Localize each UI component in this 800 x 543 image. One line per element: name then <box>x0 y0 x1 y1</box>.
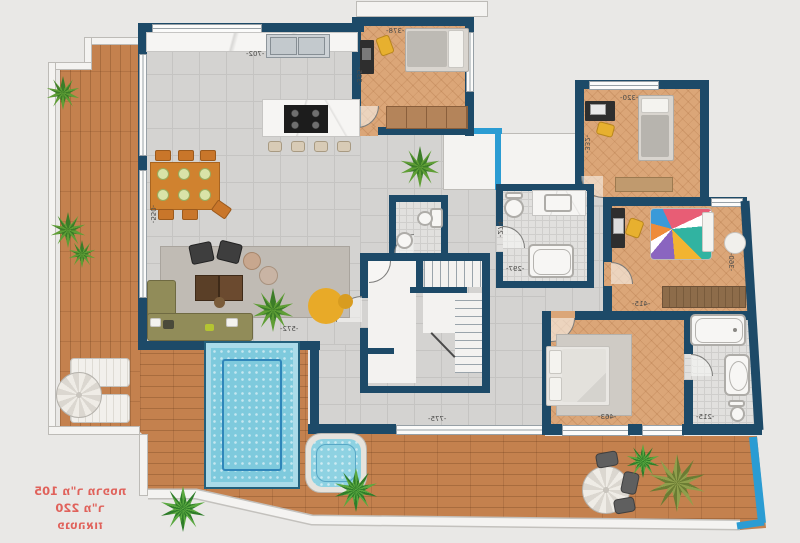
plan-stamp: 105 מ"ר מרפסת 220 מ"ר פנטהאוז <box>18 483 142 534</box>
dim-bedroom2-top: -320- <box>620 94 638 102</box>
sofa-pillow-lime <box>205 324 214 331</box>
dim-bedroom3-bottom: -415- <box>632 300 650 308</box>
sofa-pillow-dark <box>163 320 174 329</box>
side-table-round <box>214 297 225 308</box>
dim-living-bottom: -572- <box>280 325 298 333</box>
dining-chair <box>155 150 171 161</box>
cooktop <box>284 105 328 133</box>
sofa-pillow <box>150 318 161 327</box>
pouf <box>243 252 261 270</box>
dim-masterbath-bottom: -215- <box>696 413 714 421</box>
bed-pillow <box>641 98 669 113</box>
dining-chair <box>178 150 194 161</box>
dim-bedroom1-left: -335- <box>355 67 363 85</box>
dim-master-bottom: -463- <box>598 413 616 421</box>
wardrobe <box>386 106 468 129</box>
dim-bath-width: -297- <box>506 265 524 273</box>
dining-chair <box>182 209 198 220</box>
bed-blanket <box>562 349 606 402</box>
bar-stool <box>268 141 282 152</box>
bathtub-inner <box>533 249 571 275</box>
bar-stool <box>291 141 305 152</box>
pouf <box>259 266 278 285</box>
dim-bedroom1-top: -378- <box>386 27 404 35</box>
sink-bowl <box>298 37 325 55</box>
wc-sink <box>396 232 413 249</box>
diagonal-edges <box>0 0 800 543</box>
laptop <box>590 104 606 115</box>
bed-pillow <box>702 212 714 252</box>
dining-chair <box>158 209 174 220</box>
dim-kitchen-top: -702- <box>246 50 264 58</box>
stamp-line: 105 מ"ר מרפסת <box>18 483 142 500</box>
stamp-line: פנטהאוז <box>18 517 142 534</box>
place-setting <box>157 189 169 201</box>
dim-living-left: -550- <box>149 205 157 223</box>
pool-inner-line <box>222 359 282 471</box>
bed-blanket <box>641 115 669 157</box>
vanity-basin <box>729 361 748 391</box>
toilet-bowl <box>730 406 745 422</box>
bed-pillow <box>549 377 562 401</box>
vanity-sink <box>544 194 572 212</box>
bed-pillow <box>448 30 464 68</box>
bed-blanket <box>407 31 447 67</box>
laptop <box>613 218 624 234</box>
sofa-pillow <box>226 318 238 327</box>
bar-stool <box>337 141 351 152</box>
place-setting <box>199 168 211 180</box>
dim-bedroom2-left: -332- <box>583 135 591 153</box>
toilet-bowl <box>504 198 524 218</box>
bed-pillow <box>549 350 562 374</box>
jacuzzi-inner-line <box>316 444 356 482</box>
sink-bowl <box>270 37 297 55</box>
round-yellow-rug-small <box>338 294 353 309</box>
bar-stool <box>314 141 328 152</box>
place-setting <box>178 189 190 201</box>
dining-chair <box>200 150 216 161</box>
parasol-umbrella <box>56 372 102 418</box>
round-armchair <box>724 232 746 254</box>
floor-plan-canvas: -702- -378- -335- -320- -332- -297- -274… <box>0 0 800 543</box>
dim-terrace-bottom: -775- <box>428 415 446 423</box>
bathtub-drain <box>733 328 737 332</box>
place-setting <box>199 189 211 201</box>
place-setting <box>178 168 190 180</box>
bedroom3-rug <box>662 286 746 308</box>
dim-bedroom3-right: -360- <box>727 253 735 271</box>
toilet-bowl <box>417 211 433 226</box>
dim-bath-height: -274- <box>496 219 504 237</box>
laptop <box>362 48 371 60</box>
bedroom2-rug <box>615 177 673 192</box>
place-setting <box>157 168 169 180</box>
toilet-tank <box>505 192 523 199</box>
stamp-line: 220 מ"ר <box>18 500 142 517</box>
